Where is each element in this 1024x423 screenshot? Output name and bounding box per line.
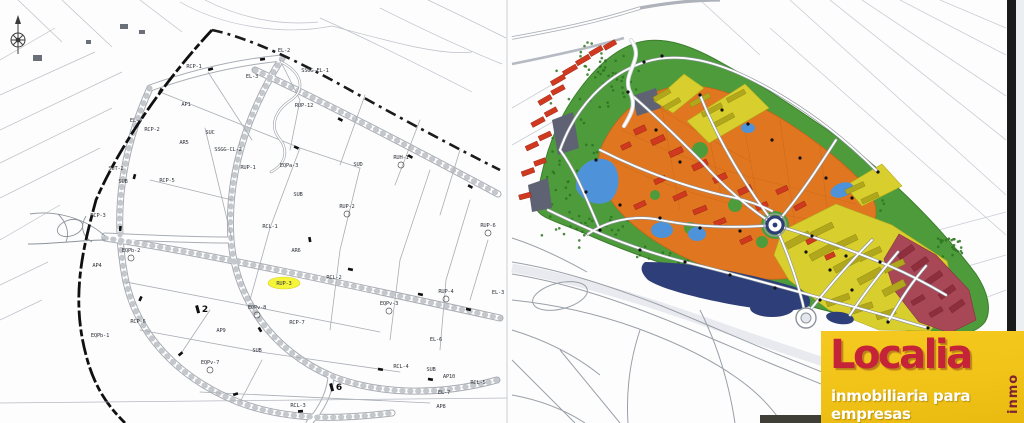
plan-roads: [105, 58, 500, 423]
road-number: 2: [202, 305, 208, 315]
road-marker-flag: [195, 305, 200, 314]
parcel-label: RCP-3: [90, 213, 105, 219]
parcel-label: RUP-2: [339, 204, 354, 210]
parcel-label: AR5: [179, 140, 188, 146]
parcel-label: EL-3: [492, 290, 504, 296]
parcel-label: RCL-3: [290, 403, 305, 409]
parcel-label: EL-4: [130, 118, 142, 124]
compass-icon: [11, 15, 25, 54]
parcel-label: AR6: [291, 248, 300, 254]
parcel-label: RCP-1: [186, 64, 201, 70]
parcel-label: EQPv-7: [201, 360, 219, 366]
parcel-label: AP8: [436, 404, 445, 410]
parcel-label: EQPb-1: [91, 333, 109, 339]
parcel-label: SUC: [205, 130, 214, 136]
parcel-label: SUT-2: [108, 166, 123, 172]
parcel-label: RCL-1: [262, 224, 277, 230]
parcel-label: RUH-1: [393, 155, 408, 161]
parcel-label: RUP-6: [480, 223, 495, 229]
fold-line: [0, 398, 508, 403]
road-number: 6: [336, 383, 342, 393]
bottom-scan-border: [760, 415, 824, 423]
parcel-label: SUD: [353, 162, 362, 168]
parcel-label: RCP-6: [130, 319, 145, 325]
parcel-label: SSGG-CL-2: [214, 147, 241, 153]
parcel-label: EQPa-3: [280, 163, 298, 169]
parcel-label: AP4: [92, 263, 101, 269]
parcel-label: RCP-7: [289, 320, 304, 326]
localia-logo: Localia inmo inmobiliaria para empresas: [821, 331, 1024, 423]
railway-line: [79, 30, 212, 423]
parcel-label: RUP-12: [295, 103, 313, 109]
parcel-label: SUB: [426, 367, 435, 373]
parcel-symbol: [443, 296, 449, 302]
roundabout: [796, 308, 816, 328]
parcel-symbol: [485, 230, 491, 236]
parcel-label: RCL-5: [470, 380, 485, 386]
parcel-label: EL-2: [278, 48, 290, 54]
parcel-symbol: [128, 255, 134, 261]
parcel-label: RCP-5: [159, 178, 174, 184]
parcel-label: RCL-2: [326, 275, 341, 281]
parcel-label: AP10: [443, 374, 455, 380]
parcel-label: RCP-2: [144, 127, 159, 133]
parcel-label: EQPv-3: [380, 301, 398, 307]
scanned-plans-page: RCP-1EL-2SSGG-EL-1EL-3AP1RUP-12EL-4RCP-2…: [0, 0, 1024, 423]
parcel-label: RCL-4: [393, 364, 408, 370]
parcel-label: RUP-4: [438, 289, 453, 295]
parcel-label: EQPv-8: [248, 305, 266, 311]
localia-tagline: inmobiliaria para empresas: [831, 387, 1024, 423]
localia-brand-text: Localia: [830, 332, 971, 378]
parcel-label: AP1: [181, 102, 190, 108]
parcel-label: RUP-1: [240, 165, 255, 171]
parcel-label: EL-6: [430, 337, 442, 343]
parcel-label: SSGG-EL-1: [301, 68, 328, 74]
parcel-symbol: [207, 367, 213, 373]
central-plaza: [764, 214, 786, 236]
parcel-label: EL-7: [438, 390, 450, 396]
parcel-label: EL-3: [246, 74, 258, 80]
parcel-label: SUB: [293, 192, 302, 198]
small-buildings: [33, 24, 145, 61]
parcel-label: AP9: [216, 328, 225, 334]
parcel-label: SUB: [252, 348, 261, 354]
parcel-label: EQPb-2: [122, 248, 140, 254]
left-cadastral-plan: RCP-1EL-2SSGG-EL-1EL-3AP1RUP-12EL-4RCP-2…: [0, 0, 508, 423]
parcel-symbol: [386, 308, 392, 314]
parcel-label: SUB: [118, 179, 127, 185]
parcel-label: RUP-3: [276, 281, 291, 287]
